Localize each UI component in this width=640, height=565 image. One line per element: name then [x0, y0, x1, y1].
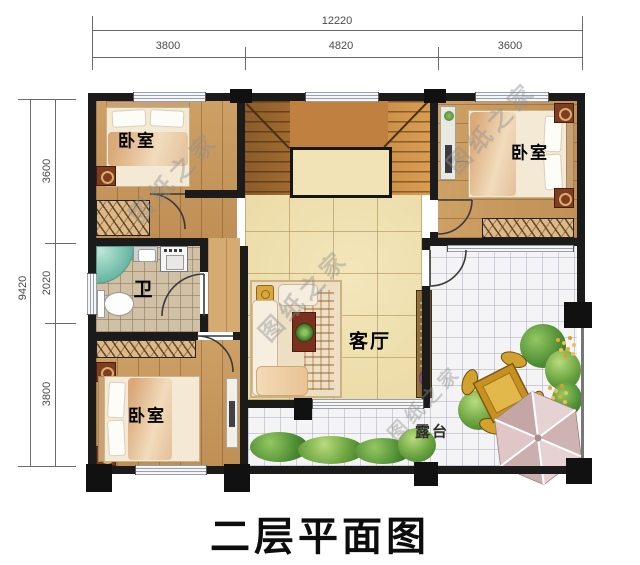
dim-tick [582, 16, 583, 70]
hallway-floor [208, 238, 240, 332]
room-label-bath: 卫 [133, 275, 154, 302]
dim-left-seg-1: 3600 [41, 157, 53, 185]
window [133, 92, 206, 102]
dim-line-left-segs [55, 99, 56, 466]
column [294, 398, 312, 420]
dim-tick [18, 99, 76, 100]
stair-flight-right [388, 101, 430, 195]
window [135, 465, 207, 475]
window [447, 245, 574, 252]
wall [237, 93, 245, 198]
dim-left-seg-3: 3800 [41, 380, 53, 408]
nightstand [554, 188, 574, 208]
dim-line-left-total [30, 99, 31, 466]
wall [88, 332, 198, 340]
column [86, 464, 112, 492]
wall [200, 314, 208, 332]
wall [430, 93, 438, 200]
dim-left-seg-2: 2020 [41, 269, 53, 297]
bed-pillow [150, 109, 185, 128]
nightstand [96, 166, 116, 186]
sofa-chaise [256, 366, 308, 396]
wall [240, 400, 302, 408]
wall [185, 190, 245, 198]
stair-flight-top [288, 101, 390, 149]
bed-pillow [107, 420, 126, 457]
dim-line-top-segs [92, 57, 582, 58]
floor-plan-page: 卧室 卫 卧室 客厅 卧室 露台 图纸之家 图纸之家 图纸之家 图纸之家 122… [0, 0, 640, 565]
wardrobe-hatch [482, 218, 574, 238]
wall [88, 238, 208, 246]
page-title: 二层平面图 [210, 504, 430, 562]
dim-tick [45, 243, 76, 244]
wall [577, 93, 585, 328]
dim-tick [45, 323, 76, 324]
stairs [245, 101, 430, 195]
room-label-bedroom-bl: 卧室 [128, 402, 166, 427]
room-label-living: 客厅 [349, 327, 391, 354]
column [424, 89, 446, 103]
bed-pillow [107, 382, 126, 419]
toilet-bowl [104, 292, 134, 316]
dim-left-total: 9420 [17, 274, 29, 302]
flower-cluster [556, 338, 560, 342]
bed-pillow [112, 109, 147, 128]
room-label-bedroom-tr: 卧室 [511, 139, 549, 164]
wall [240, 246, 248, 332]
column [564, 302, 592, 328]
dim-top-seg-1: 3800 [154, 40, 182, 52]
column [230, 89, 252, 103]
stair-void [290, 147, 392, 198]
dim-tick [18, 466, 76, 467]
dresser [226, 378, 238, 448]
wardrobe-hatch [96, 340, 196, 358]
dim-tick [92, 16, 93, 70]
nightstand [554, 103, 574, 123]
window [305, 92, 379, 102]
room-label-bedroom-tl: 卧室 [118, 127, 156, 152]
dim-tick [438, 47, 439, 70]
column [414, 462, 438, 486]
sink [133, 246, 158, 262]
column [224, 464, 250, 492]
column [566, 458, 592, 484]
wall [430, 232, 438, 246]
window [87, 273, 97, 315]
dim-top-seg-3: 3600 [496, 40, 524, 52]
terrace-railing [581, 328, 584, 460]
wall [233, 332, 248, 340]
dim-tick [245, 47, 246, 70]
stair-flight-left [245, 101, 290, 195]
bed-headboard [566, 110, 574, 198]
washing-machine [160, 246, 188, 272]
wall [200, 238, 208, 272]
dim-top-total: 12220 [320, 15, 355, 27]
dim-top-seg-2: 4820 [327, 40, 355, 52]
dim-line-top-total [92, 30, 582, 31]
